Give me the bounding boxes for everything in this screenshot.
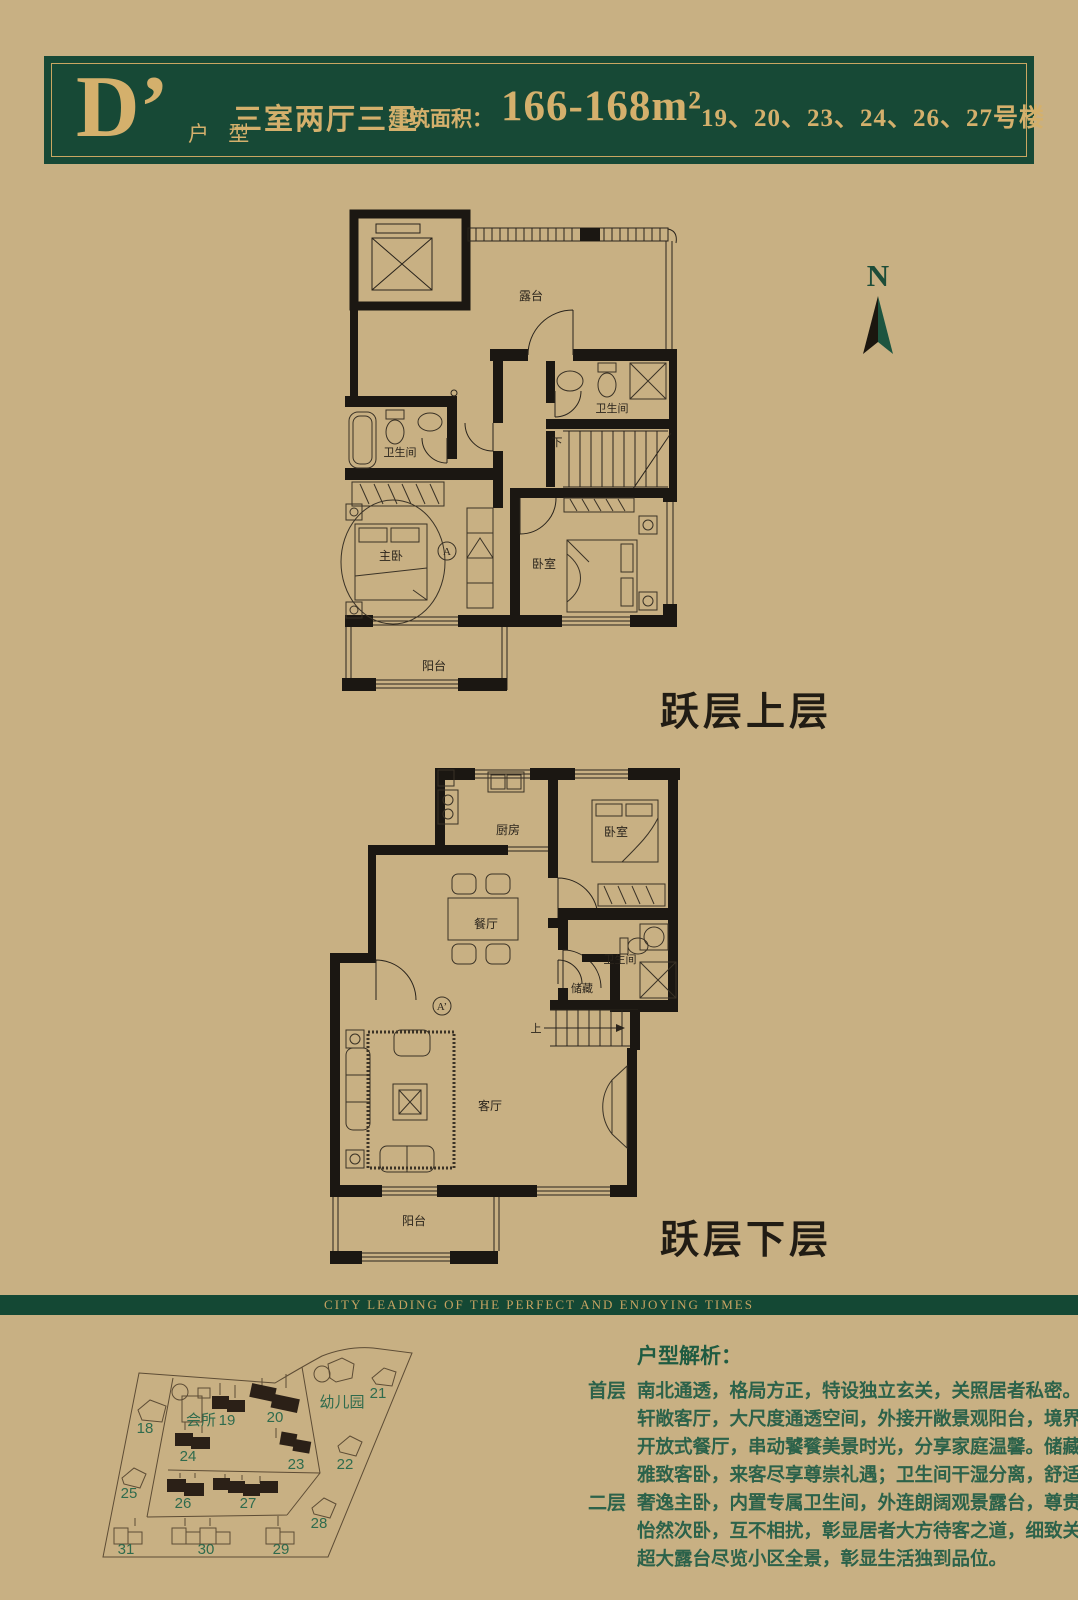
section-lines: 南北通透，格局方正，特设独立玄关，关照居者私密。 轩敞客厅，大尺度通透空间，外接… bbox=[637, 1378, 1078, 1490]
section-label: 二层 bbox=[588, 1490, 628, 1574]
section-lines: 奢逸主卧，内置专属卫生间，外连朗阔观景露台，尊贵感浸润其中。 怡然次卧，互不相扰… bbox=[637, 1490, 1078, 1574]
map-label-28: 28 bbox=[311, 1515, 328, 1532]
terrace-label: 露台 bbox=[519, 288, 543, 303]
analysis-section-second-floor: 二层 奢逸主卧，内置专属卫生间，外连朗阔观景露台，尊贵感浸润其中。 怡然次卧，互… bbox=[588, 1490, 1060, 1574]
analysis-line: 超大露台尽览小区全景，彰显生活独到品位。 bbox=[637, 1546, 1078, 1574]
map-label-24: 24 bbox=[180, 1448, 197, 1465]
upper-floor-plan: 露台 卫生间 卫生间 主卧 卧室 阳台 下 A bbox=[330, 198, 680, 698]
area-label: 建筑面积： bbox=[388, 103, 493, 133]
analysis-line: 怡然次卧，互不相扰，彰显居者大方待客之道，细致关怀。 bbox=[637, 1518, 1078, 1546]
upper-plan-caption: 跃层上层 bbox=[660, 681, 832, 737]
map-label-18: 18 bbox=[137, 1420, 154, 1437]
map-label-27: 27 bbox=[240, 1495, 257, 1512]
site-map-roads bbox=[103, 1348, 412, 1557]
map-label-31: 31 bbox=[118, 1541, 135, 1558]
bath2-label: 卫生间 bbox=[596, 401, 629, 415]
map-label-21: 21 bbox=[370, 1385, 387, 1402]
site-map: 18 会所 19 20 21 幼儿园 22 23 24 25 26 27 28 … bbox=[90, 1330, 570, 1600]
analysis-line: 雅致客卧，来客尽享尊崇礼遇；卫生间干湿分离，舒适生活起居。 bbox=[637, 1462, 1078, 1490]
section-marker-a: A bbox=[443, 546, 451, 558]
building-numbers-text: 19、20、23、24、26、27号楼 bbox=[701, 98, 1045, 134]
analysis-title: 户型解析： bbox=[637, 1340, 1060, 1370]
area-value: 166-168m² bbox=[501, 82, 702, 131]
unit-letter: D’ bbox=[76, 66, 169, 150]
header-band: D’ 户 型 三室两厅三卫 建筑面积： 166-168m² 19、20、23、2… bbox=[44, 56, 1034, 164]
map-label-club: 会所 bbox=[186, 1412, 216, 1429]
poster-page: D’ 户 型 三室两厅三卫 建筑面积： 166-168m² 19、20、23、2… bbox=[0, 0, 1078, 1600]
section-marker-a-prime: A’ bbox=[437, 1001, 447, 1013]
stairs-up-label: 上 bbox=[531, 1022, 542, 1035]
compass-arrow-icon bbox=[852, 294, 904, 360]
slogan-band: CITY LEADING OF THE PERFECT AND ENJOYING… bbox=[0, 1295, 1078, 1315]
lower-room-labels: 厨房 卧室 餐厅 卫生间 储藏 客厅 阳台 上 A’ bbox=[402, 822, 637, 1228]
compass-n-label: N bbox=[852, 258, 904, 294]
map-label-30: 30 bbox=[198, 1541, 215, 1558]
dining-label: 餐厅 bbox=[474, 916, 498, 931]
analysis-line: 轩敞客厅，大尺度通透空间，外接开敞景观阳台，境界尽在视野间。 bbox=[637, 1406, 1078, 1434]
bedroom2-label: 卧室 bbox=[532, 556, 556, 571]
analysis-block: 户型解析： 首层 南北通透，格局方正，特设独立玄关，关照居者私密。 轩敞客厅，大… bbox=[588, 1340, 1060, 1574]
map-label-22: 22 bbox=[337, 1456, 354, 1473]
lower-bedroom-label: 卧室 bbox=[604, 824, 628, 839]
analysis-section-first-floor: 首层 南北通透，格局方正，特设独立玄关，关照居者私密。 轩敞客厅，大尺度通透空间… bbox=[588, 1378, 1060, 1490]
kitchen-label: 厨房 bbox=[496, 822, 520, 837]
map-label-23: 23 bbox=[288, 1456, 305, 1473]
stairs-down-label: 下 bbox=[552, 437, 563, 449]
map-label-26: 26 bbox=[175, 1495, 192, 1512]
slogan-text: CITY LEADING OF THE PERFECT AND ENJOYING… bbox=[324, 1297, 754, 1313]
master-bedroom-label: 主卧 bbox=[379, 549, 403, 563]
storage-label: 储藏 bbox=[571, 981, 593, 995]
lower-floor-plan: 厨房 卧室 餐厅 卫生间 储藏 客厅 阳台 上 A’ bbox=[320, 748, 680, 1268]
analysis-line: 奢逸主卧，内置专属卫生间，外连朗阔观景露台，尊贵感浸润其中。 bbox=[637, 1490, 1078, 1518]
site-map-buildings-highlight bbox=[167, 1383, 312, 1496]
map-label-25: 25 bbox=[121, 1485, 138, 1502]
section-label: 首层 bbox=[588, 1378, 628, 1490]
header-gold-frame: D’ 户 型 三室两厅三卫 建筑面积： 166-168m² 19、20、23、2… bbox=[51, 63, 1027, 157]
map-label-kindergarten: 幼儿园 bbox=[319, 1394, 364, 1411]
upper-balcony-label: 阳台 bbox=[422, 658, 446, 673]
bath1-label: 卫生间 bbox=[384, 445, 417, 459]
map-label-19: 19 bbox=[219, 1412, 236, 1429]
analysis-line: 开放式餐厅，串动饕餮美景时光，分享家庭温馨。储藏间收纳生活点滴。 bbox=[637, 1434, 1078, 1462]
lower-plan-caption: 跃层下层 bbox=[660, 1209, 832, 1265]
north-compass: N bbox=[852, 258, 904, 365]
living-room-label: 客厅 bbox=[478, 1098, 502, 1113]
analysis-line: 南北通透，格局方正，特设独立玄关，关照居者私密。 bbox=[637, 1378, 1078, 1406]
map-label-29: 29 bbox=[273, 1541, 290, 1558]
lower-walls bbox=[330, 768, 680, 1264]
map-label-20: 20 bbox=[267, 1409, 284, 1426]
lower-bath-label: 卫生间 bbox=[604, 952, 637, 966]
lower-balcony-label: 阳台 bbox=[402, 1213, 426, 1228]
